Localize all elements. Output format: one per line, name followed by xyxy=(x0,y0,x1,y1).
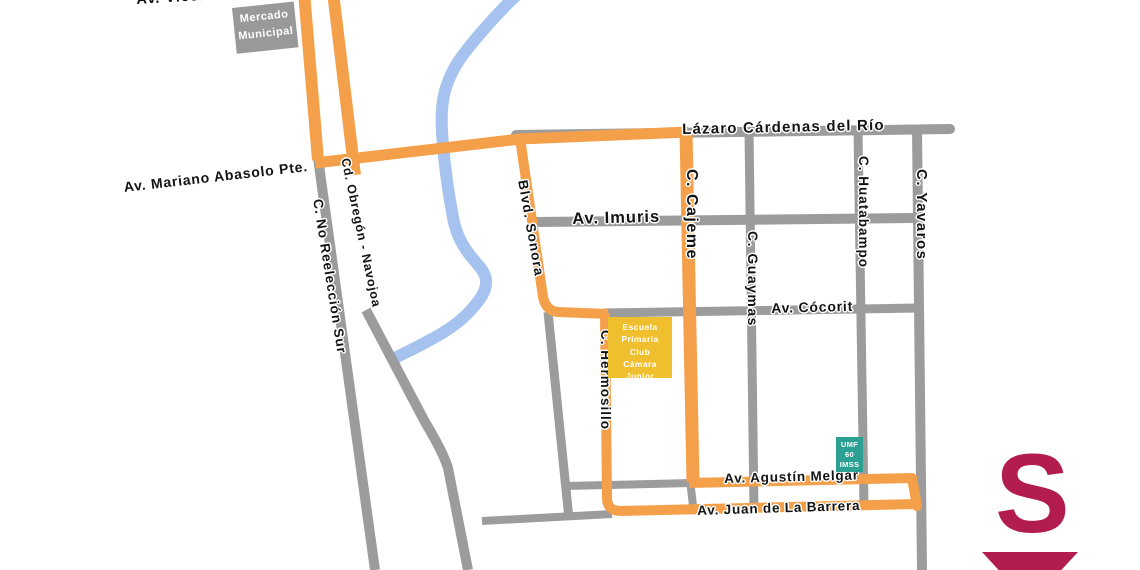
label-c-huatabampo: C. Huatabampo xyxy=(857,156,871,268)
road-orange-right-vertical xyxy=(333,0,355,175)
poi-mercado-municipal: Mercado Municipal xyxy=(232,2,298,54)
road-agustin-west xyxy=(565,483,692,486)
label-av-imuris: Av. Imuris xyxy=(572,209,660,228)
poi-umf-60-imss: UMF 60 IMSS xyxy=(836,437,863,472)
road-av-cocorit xyxy=(604,308,918,313)
label-c-yavaros: C. Yavaros xyxy=(914,169,929,260)
road-mariano-abasolo xyxy=(315,132,688,163)
map-canvas xyxy=(0,0,1140,570)
road-loop-right xyxy=(912,478,917,506)
label-c-cajeme: C. Cajeme xyxy=(683,169,699,260)
s-logo-arrow-icon xyxy=(982,552,1078,570)
road-juan-barrera-west xyxy=(482,514,612,521)
label-lazaro-cardenas: Lázaro Cárdenas del Río xyxy=(682,118,885,137)
river xyxy=(397,0,518,357)
street-map: Av. Vicente Guerrero Av. Mariano Abasolo… xyxy=(0,0,1140,570)
poi-escuela-primaria-club-camara-junior: Escuela Primaria Club Cámara Junior xyxy=(608,317,672,378)
label-av-cocorit: Av. Cócorit xyxy=(771,299,853,315)
road-orange-left-vertical xyxy=(304,0,318,160)
label-c-guaymas: C. Guaymas xyxy=(746,231,760,327)
s-logo-letter: S xyxy=(995,438,1070,550)
